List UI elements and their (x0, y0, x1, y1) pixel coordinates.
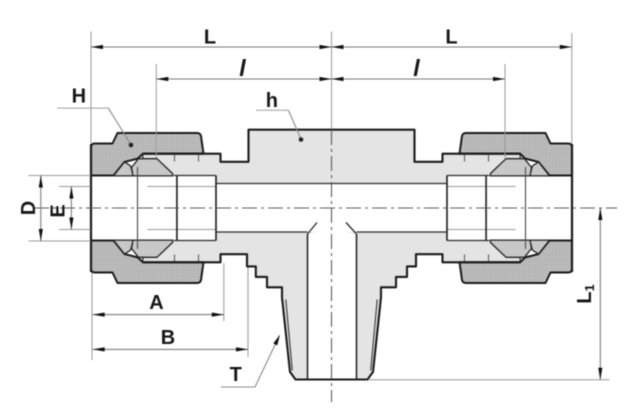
svg-text:L: L (445, 27, 457, 49)
svg-text:T: T (230, 364, 242, 386)
svg-text:L: L (204, 27, 216, 49)
svg-text:H: H (72, 86, 86, 108)
svg-text:l: l (413, 55, 420, 81)
svg-text:l: l (239, 55, 246, 81)
svg-text:B: B (161, 327, 175, 349)
svg-text:D: D (18, 201, 40, 215)
svg-text:A: A (149, 292, 163, 314)
svg-text:E: E (48, 204, 70, 217)
svg-text:h: h (266, 90, 278, 112)
